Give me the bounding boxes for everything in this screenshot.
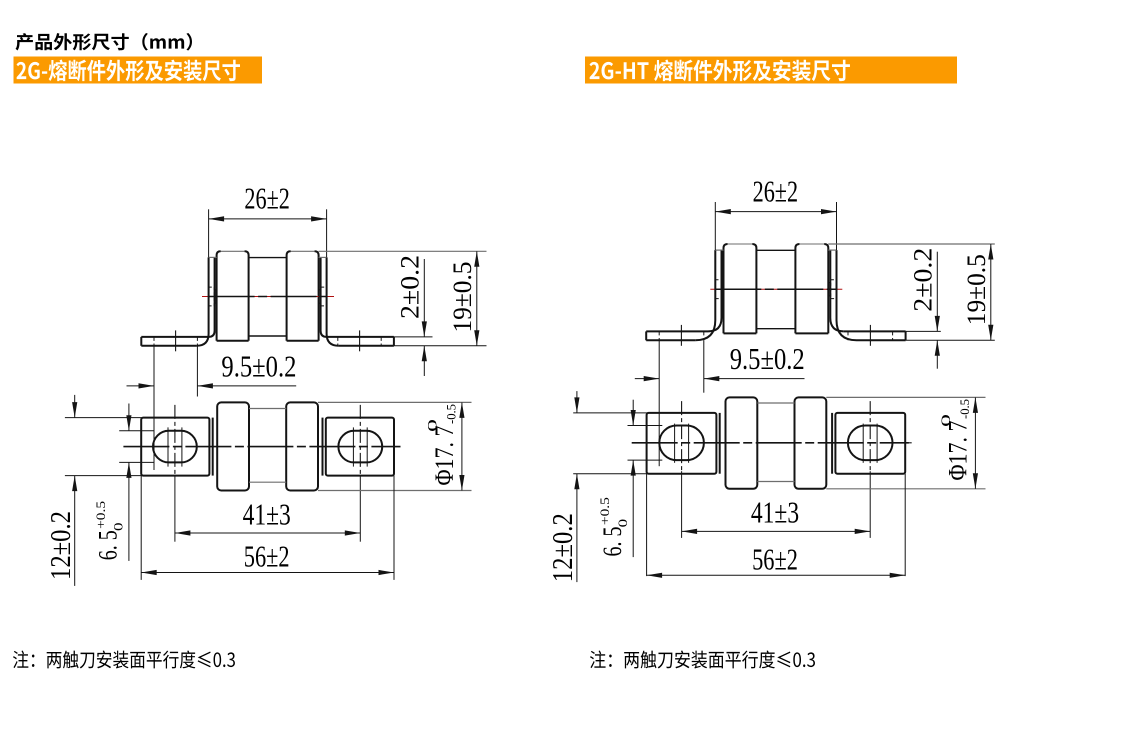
- svg-text:0: 0: [615, 519, 630, 528]
- svg-text:2±0.2: 2±0.2: [907, 248, 937, 312]
- svg-text:41±3: 41±3: [751, 495, 799, 530]
- svg-text:+0.5: +0.5: [597, 497, 612, 525]
- svg-text:26±2: 26±2: [753, 173, 799, 208]
- svg-text:0: 0: [938, 414, 953, 427]
- svg-text:12±0.2: 12±0.2: [547, 513, 579, 582]
- svg-text:9.5±0.2: 9.5±0.2: [221, 348, 296, 383]
- svg-text:19±0.5: 19±0.5: [961, 254, 991, 325]
- svg-text:-0.5: -0.5: [443, 404, 458, 424]
- svg-text:19±0.5: 19±0.5: [447, 262, 477, 333]
- svg-text:0: 0: [425, 419, 440, 432]
- svg-text:0: 0: [110, 523, 125, 532]
- svg-text:6. 5: 6. 5: [94, 530, 123, 560]
- svg-text:41±3: 41±3: [243, 496, 291, 531]
- svg-text:56±2: 56±2: [244, 539, 290, 574]
- svg-text:2±0.2: 2±0.2: [394, 255, 424, 319]
- svg-text:Φ17. 7: Φ17. 7: [943, 421, 972, 481]
- svg-text:12±0.2: 12±0.2: [45, 511, 77, 580]
- svg-text:9.5±0.2: 9.5±0.2: [730, 341, 805, 376]
- svg-text:-0.5: -0.5: [957, 399, 972, 419]
- svg-text:56±2: 56±2: [752, 541, 798, 576]
- svg-text:6. 5: 6. 5: [598, 527, 627, 557]
- svg-text:26±2: 26±2: [244, 181, 290, 216]
- svg-text:Φ17. 7: Φ17. 7: [430, 426, 459, 486]
- svg-text:+0.5: +0.5: [93, 501, 108, 529]
